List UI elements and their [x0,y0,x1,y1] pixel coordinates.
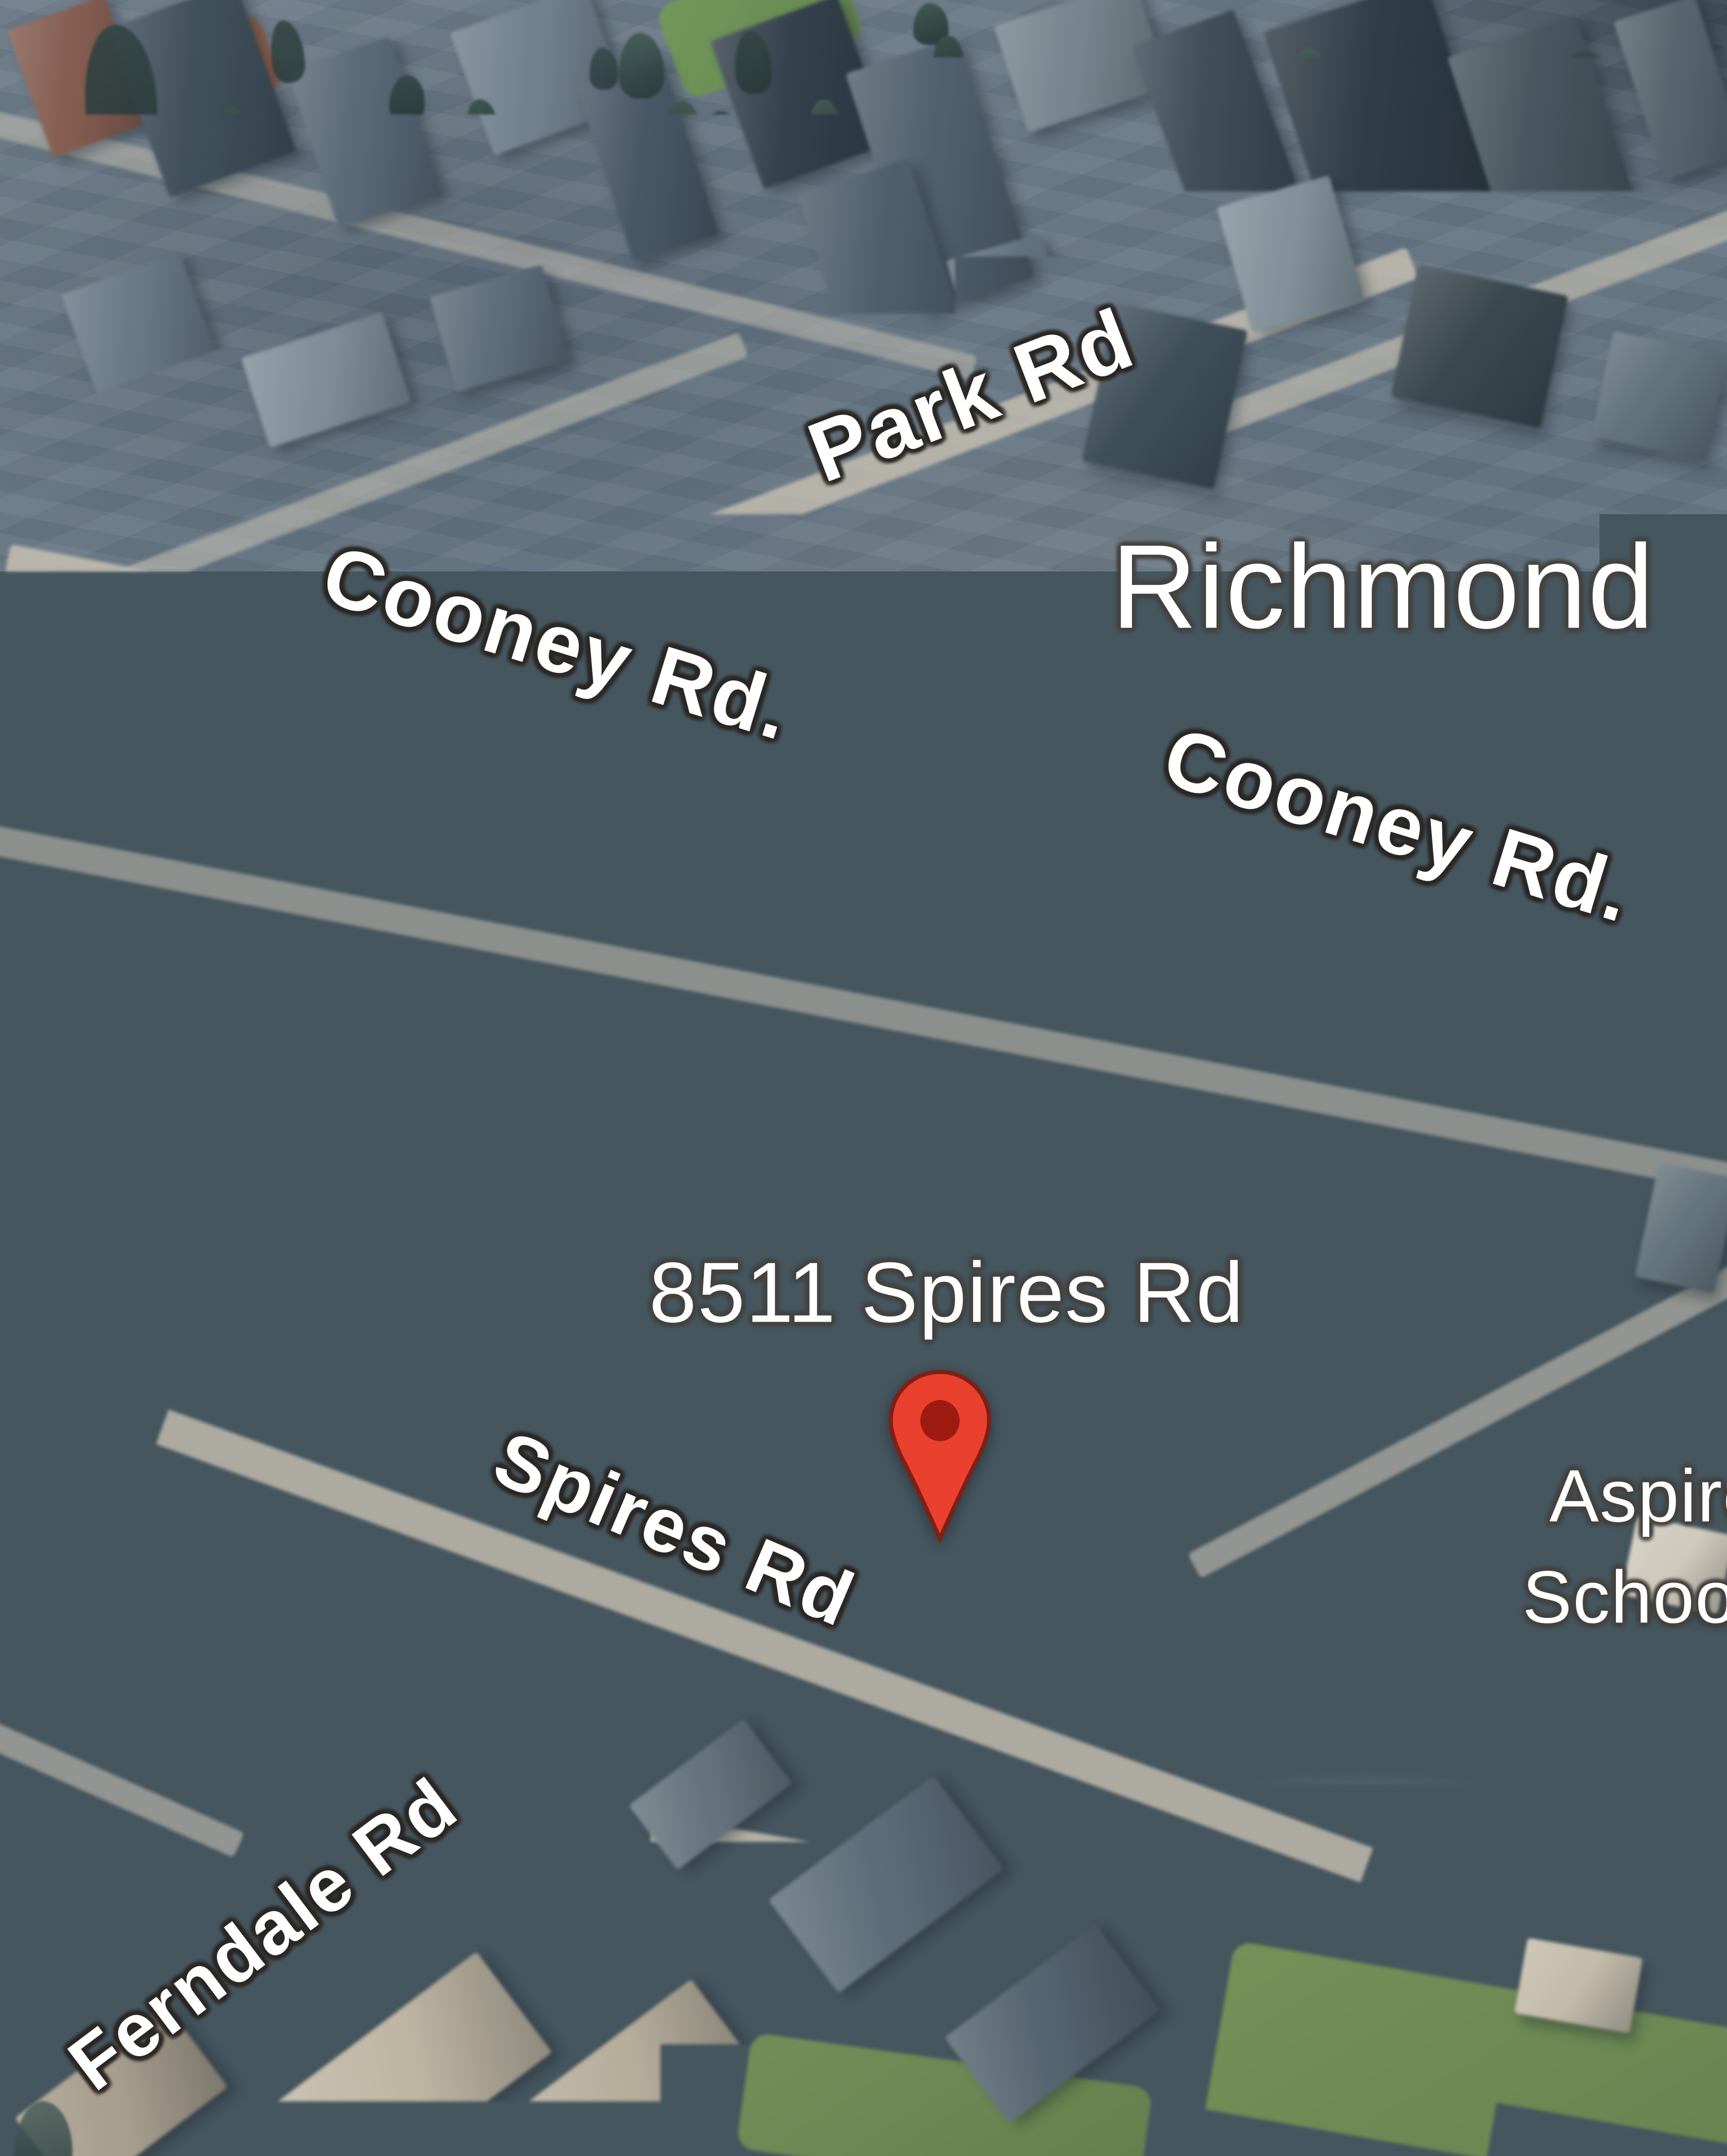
road-markings-layer [0,0,1727,2156]
lane-dash [1057,1954,1093,1965]
map-pin-icon[interactable] [884,1366,996,1546]
lane-dash [693,1890,729,1902]
lane-dash [1543,2038,1579,2050]
marker-address-label: 8511 Spires Rd [649,1248,1244,1338]
crosswalk-marking [1241,1883,1309,1906]
poi-label-line2: Schoo [1522,1558,1727,1636]
lane-dash [935,1932,972,1944]
crosswalk-marking [1425,1807,1449,1875]
lane-dash [814,1911,850,1923]
city-label-richmond: Richmond [1111,524,1655,649]
satellite-imagery [0,0,1727,2156]
crosswalk-marking [1313,1820,1336,1888]
poi-label-line1: Aspire [1549,1457,1727,1535]
lane-dash [1178,1975,1215,1986]
lane-dash [1421,2017,1458,2029]
lane-dash [1300,1996,1336,2008]
map-3d-view[interactable]: Park Rd Cooney Rd. Richmond Cooney Rd. 8… [0,0,1727,2156]
crosswalk-marking [1344,1861,1413,1884]
